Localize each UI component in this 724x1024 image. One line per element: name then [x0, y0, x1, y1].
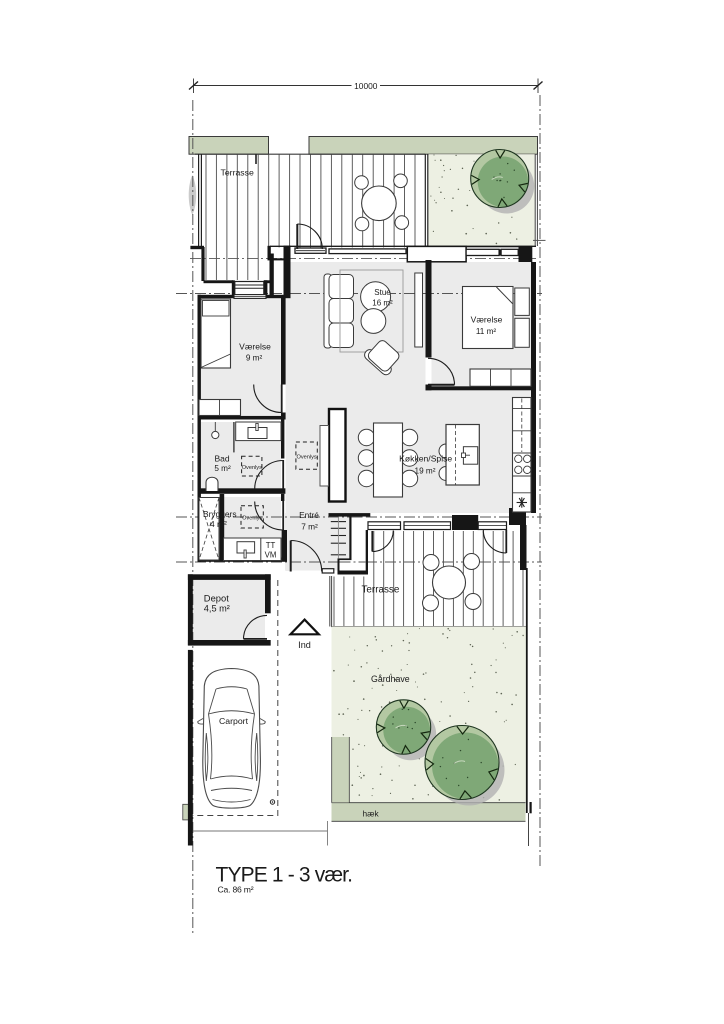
svg-text:TT: TT	[266, 541, 276, 550]
svg-text:Depot: Depot	[204, 593, 229, 604]
svg-text:Køkken/Spise: Køkken/Spise	[399, 454, 452, 464]
svg-text:Carport: Carport	[219, 716, 249, 726]
svg-text:Bad: Bad	[214, 454, 229, 464]
svg-text:Stue: Stue	[374, 288, 391, 297]
svg-text:19 m²: 19 m²	[415, 467, 436, 476]
svg-text:10000: 10000	[354, 81, 378, 91]
svg-text:Ovenlys: Ovenlys	[296, 454, 316, 460]
svg-text:Ind: Ind	[298, 640, 311, 650]
svg-text:VM: VM	[265, 551, 277, 560]
svg-text:Terrasse: Terrasse	[221, 168, 254, 178]
svg-text:Terrasse: Terrasse	[362, 585, 400, 596]
svg-text:Bryggers: Bryggers	[203, 509, 237, 519]
svg-text:4,5 m²: 4,5 m²	[204, 604, 230, 614]
svg-text:Værelse: Værelse	[239, 342, 271, 352]
svg-text:Gårdhave: Gårdhave	[371, 674, 410, 684]
svg-text:5 m²: 5 m²	[214, 464, 231, 473]
svg-text:7 m²: 7 m²	[301, 522, 318, 532]
svg-text:Entré: Entré	[299, 510, 319, 520]
svg-text:Ca. 86 m²: Ca. 86 m²	[218, 885, 254, 895]
svg-text:Værelse: Værelse	[471, 315, 503, 325]
svg-text:hæk: hæk	[363, 809, 380, 819]
svg-text:4 m²: 4 m²	[210, 519, 227, 529]
svg-text:Ovenlys: Ovenlys	[242, 465, 262, 471]
svg-text:16 m²: 16 m²	[372, 299, 393, 308]
svg-text:TYPE 1 - 3 vær.: TYPE 1 - 3 vær.	[216, 863, 353, 886]
svg-text:9 m²: 9 m²	[246, 354, 263, 363]
svg-text:11 m²: 11 m²	[476, 327, 497, 336]
svg-text:Ovenlys: Ovenlys	[242, 515, 262, 521]
